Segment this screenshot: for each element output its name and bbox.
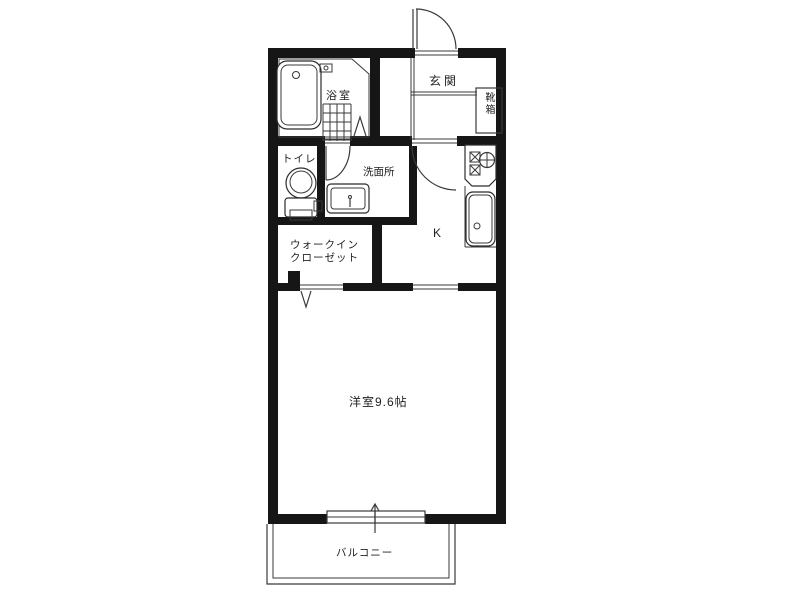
washroom-label: 洗面所 (363, 164, 395, 179)
bath-faucet-icon (324, 66, 328, 70)
kitchen (412, 139, 496, 247)
washroom-door-swing-arc (326, 146, 350, 180)
toilet-label: トイレ (282, 151, 317, 166)
entrance-door (413, 9, 458, 55)
walk-in-closet-label-line1: ウォークイン (290, 239, 359, 252)
bathroom-folding-door (323, 104, 366, 141)
wall-closet-door-jamb (288, 271, 300, 284)
balcony-label: バルコニー (336, 545, 393, 560)
wall-room-top-left (268, 283, 300, 291)
door-fold-mark (354, 117, 366, 136)
bathtub (277, 61, 321, 129)
wall-bottom-right-of-window (425, 514, 506, 524)
entrance-label: 玄関 (429, 72, 459, 89)
bath-faucet-icon (320, 64, 332, 72)
wall-room-top-right (458, 283, 506, 291)
closet-door-fold-mark (301, 291, 311, 307)
wall-top-right-of-door (458, 48, 506, 58)
wall-toilet-right (317, 146, 325, 225)
shoe-box-label: 靴箱 (481, 92, 496, 116)
kitchen-door-swing-arc (412, 146, 456, 190)
kitchen-sink (466, 192, 495, 246)
toilet-fixture (285, 168, 322, 220)
floor-plan-drawing (0, 0, 800, 600)
walk-in-closet-label: ウォークイン クローゼット (290, 239, 359, 265)
main-room-label: 洋室9.6帖 (349, 393, 408, 410)
bathroom-label: 浴室 (326, 87, 352, 103)
wall-bathroom-right (370, 48, 380, 146)
wall-room-top-mid (343, 283, 413, 291)
vanity-sink (327, 184, 369, 213)
floor-plan: 浴室 玄関 靴箱 トイレ 洗面所 K ウォークイン クローゼット 洋室9.6帖 … (0, 0, 800, 600)
walk-in-closet-label-line2: クローゼット (290, 252, 359, 265)
wall-bottom-left-of-window (268, 514, 327, 524)
balcony-window (327, 504, 425, 533)
wall-top-left-of-door (268, 48, 415, 58)
kitchen-label: K (433, 226, 441, 240)
entrance-door-swing-arc (416, 9, 456, 49)
wall-closet-right (372, 225, 382, 291)
